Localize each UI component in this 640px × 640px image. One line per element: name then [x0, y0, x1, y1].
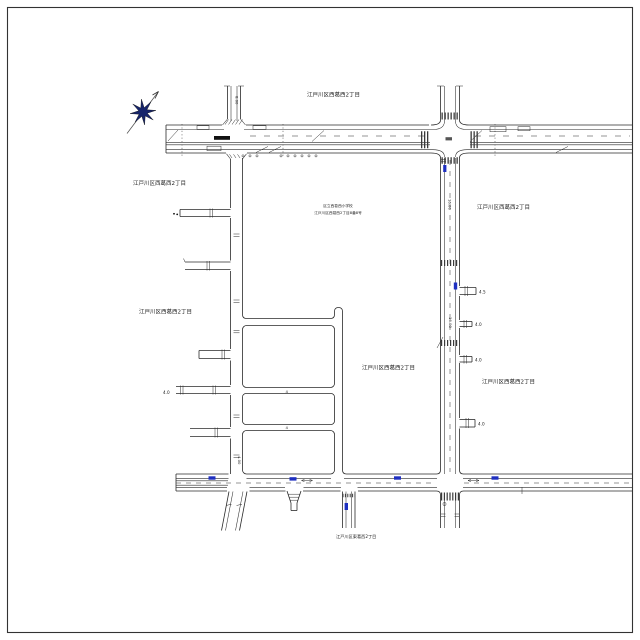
survey-point-dots: [173, 213, 175, 215]
west-street-h2: 4.0: [163, 386, 231, 396]
side-stub-d: 4.0: [460, 418, 485, 428]
roadside-structure: [490, 127, 506, 132]
edge-hatch-marks: [168, 130, 568, 153]
city-block: [243, 326, 335, 388]
junction-funnel-hatch: [227, 154, 247, 159]
school-name-label: 区立西葛西小学校: [323, 203, 353, 208]
roadside-structure: [197, 126, 209, 130]
blue-road-marker: [443, 165, 446, 172]
intersection-northeast: [421, 86, 479, 161]
roadside-structure: [518, 127, 530, 131]
road-north: [166, 124, 632, 157]
compass-rose: [127, 92, 159, 134]
west-stub-3: [199, 350, 231, 360]
intersection-center-mark: [446, 137, 453, 140]
road-register-map: 8.00: [0, 0, 640, 640]
district-label-south: 江戸川区東葛西2丁目: [336, 533, 376, 540]
survey-point-dots: [176, 214, 178, 216]
roadside-structure: [253, 126, 266, 130]
road-south: [176, 474, 632, 495]
width-note-label: 4.0: [475, 358, 482, 363]
road-width-vertical-note: 4.00: [237, 456, 242, 465]
district-label-center-east: 江戸川区西葛西2丁目: [362, 364, 415, 372]
width-note-label: 4.5: [479, 290, 486, 295]
district-label-east-upper: 江戸川区西葛西2丁目: [477, 203, 530, 211]
bus-stop-mark: [214, 136, 230, 140]
funnel-stub-south: [287, 491, 301, 511]
blue-road-marker: [209, 476, 216, 479]
grid-width-note: 4: [286, 425, 289, 430]
width-note-label: 4.0: [163, 390, 170, 395]
district-label-west-upper: 江戸川区西葛西2丁目: [133, 179, 186, 187]
road-width-vertical-note: 16.00: [448, 199, 453, 210]
interior-blocks: 4 4: [243, 326, 335, 475]
blue-road-marker: [454, 283, 457, 290]
road-east-south-leg: [441, 495, 460, 528]
side-stub-a: 4.5: [460, 286, 486, 296]
district-label-west-middle: 江戸川区西葛西2丁目: [139, 308, 192, 316]
blue-road-marker: [492, 476, 499, 479]
width-note-label: 4.0: [478, 422, 485, 427]
dimension-arrow: [302, 479, 313, 481]
border-frame: [8, 8, 633, 633]
school-address-label: 江戸川区西葛西2丁目8番8号: [314, 210, 362, 215]
district-label-north: 江戸川区西葛西2丁目: [307, 91, 360, 99]
district-label-east-lower: 江戸川区西葛西2丁目: [482, 378, 535, 386]
junction-funnel-hatch: [223, 119, 246, 125]
guard-post-circles: [242, 155, 317, 157]
width-note-label: 4.0: [475, 322, 482, 327]
blue-road-marker: [345, 503, 348, 510]
compass-star-icon: [130, 99, 156, 125]
street-mid-south: [343, 492, 356, 529]
road-width-vertical-note: 8.00: [235, 96, 240, 105]
side-stub-b: 4.0: [460, 320, 482, 328]
west-stub-2: [184, 259, 231, 271]
blue-road-marker: [290, 477, 297, 480]
city-block: [243, 431, 335, 475]
side-stub-c: 4.0: [460, 355, 482, 364]
blue-road-marker: [394, 476, 401, 479]
street-north-upper: 8.00: [223, 86, 246, 125]
dimension-arrow: [468, 479, 479, 481]
junction-tick-marks: [234, 234, 240, 457]
west-stub-5: [190, 428, 231, 438]
street-slant-south: [222, 492, 248, 531]
map-canvas: 8.00: [0, 0, 640, 640]
city-block: [243, 394, 335, 425]
road-width-vertical-note: 16.00: [448, 317, 453, 328]
blue-markers: [209, 165, 499, 510]
west-stub-1: [173, 209, 230, 218]
